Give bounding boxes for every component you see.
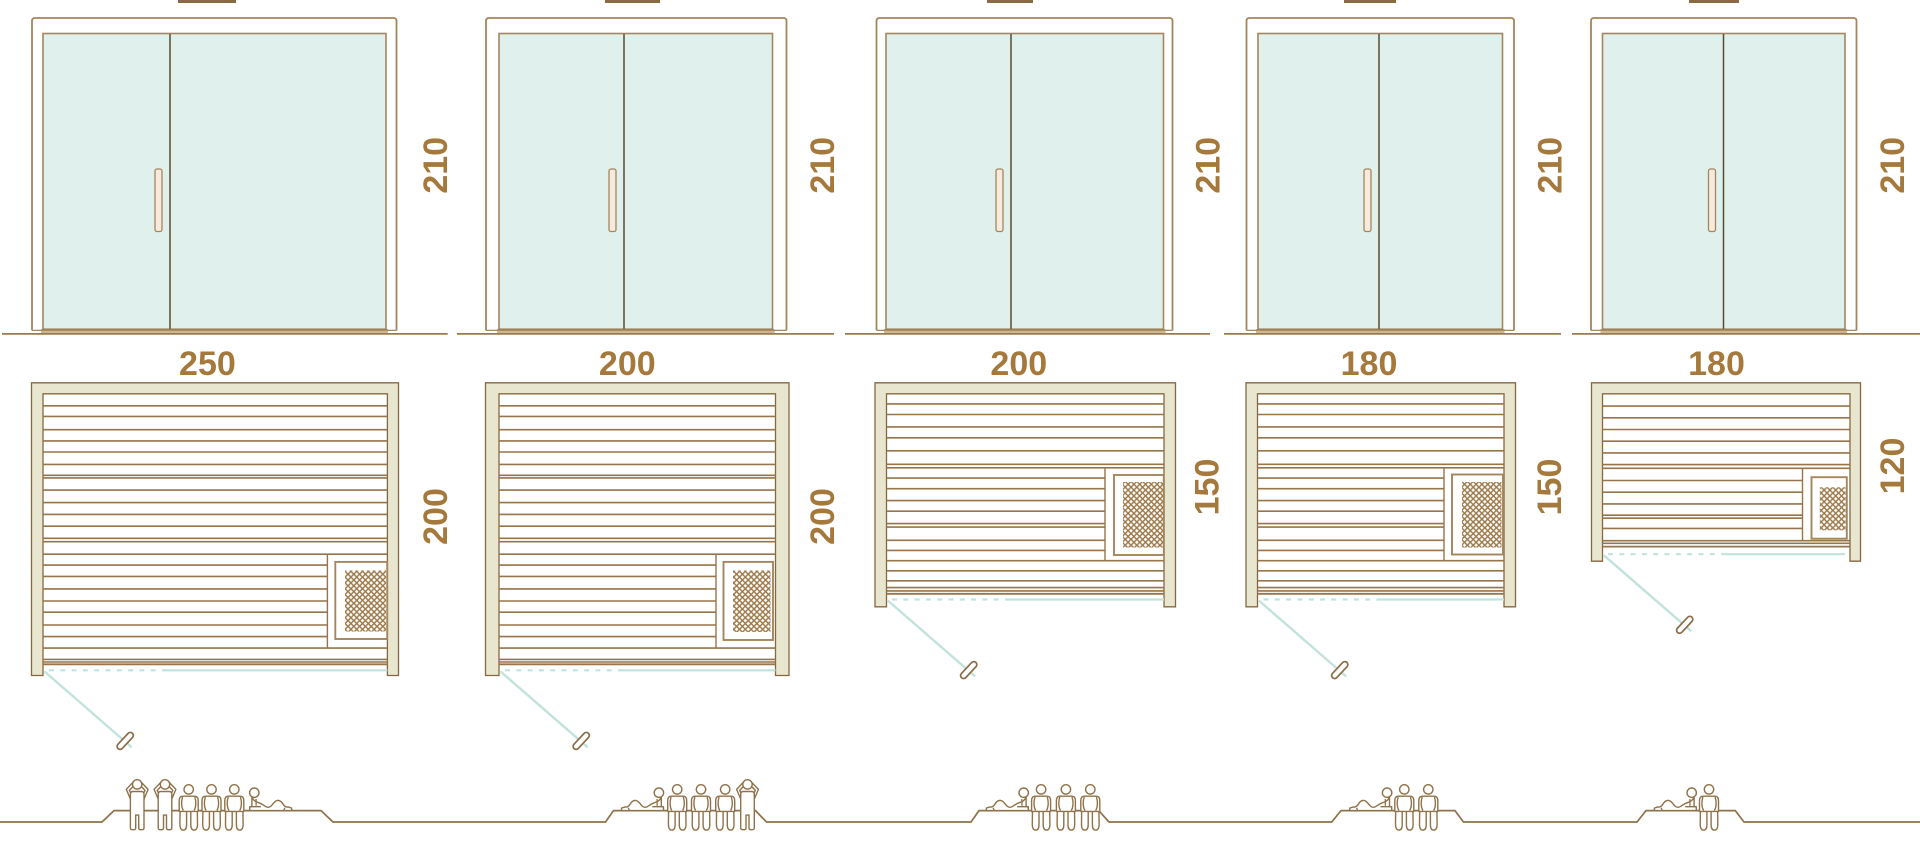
svg-text:180: 180: [1341, 345, 1398, 383]
svg-text:210: 210: [1874, 137, 1912, 194]
svg-text:180: 180: [1688, 345, 1745, 383]
svg-text:210: 210: [804, 137, 842, 194]
svg-text:150: 150: [1531, 459, 1569, 516]
svg-text:200: 200: [990, 345, 1047, 383]
svg-text:200: 200: [804, 488, 842, 545]
svg-text:210: 210: [417, 137, 455, 194]
svg-text:200: 200: [599, 345, 656, 383]
svg-text:250: 250: [179, 345, 236, 383]
svg-text:210: 210: [1531, 137, 1569, 194]
svg-text:200: 200: [417, 488, 455, 545]
svg-text:210: 210: [1190, 137, 1228, 194]
svg-text:120: 120: [1874, 438, 1912, 495]
svg-text:150: 150: [1188, 459, 1226, 516]
